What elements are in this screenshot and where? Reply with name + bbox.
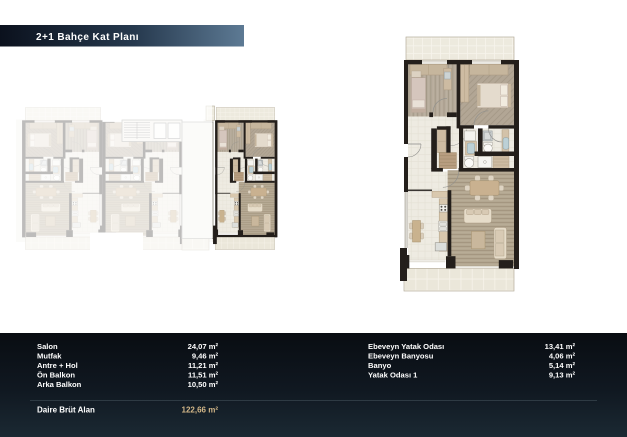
svg-text:4,06 m²: 4,06 m²	[549, 352, 576, 361]
svg-text:9,13 m²: 9,13 m²	[549, 371, 576, 380]
svg-text:11,21 m²: 11,21 m²	[188, 361, 218, 370]
svg-text:Banyo: Banyo	[368, 361, 392, 370]
svg-text:Ön Balkon: Ön Balkon	[37, 371, 75, 380]
svg-text:5,14 m²: 5,14 m²	[549, 361, 576, 370]
svg-text:2+1 Bahçe Kat Planı: 2+1 Bahçe Kat Planı	[36, 32, 139, 43]
svg-text:122,66 m²: 122,66 m²	[182, 406, 219, 415]
svg-text:Ebeveyn Banyosu: Ebeveyn Banyosu	[368, 352, 434, 361]
svg-text:Arka Balkon: Arka Balkon	[37, 380, 82, 389]
svg-text:Yatak Odası 1: Yatak Odası 1	[368, 371, 418, 380]
svg-text:Antre + Hol: Antre + Hol	[37, 361, 78, 370]
svg-text:24,07 m²: 24,07 m²	[188, 342, 219, 351]
svg-text:10,50 m²: 10,50 m²	[188, 380, 219, 389]
svg-text:9,46 m²: 9,46 m²	[192, 352, 219, 361]
svg-text:11,51 m²: 11,51 m²	[188, 371, 218, 380]
svg-text:Ebeveyn Yatak Odası: Ebeveyn Yatak Odası	[368, 342, 444, 351]
svg-text:13,41 m²: 13,41 m²	[545, 342, 576, 351]
svg-text:Daire Brüt Alan: Daire Brüt Alan	[37, 406, 95, 415]
svg-text:Salon: Salon	[37, 342, 58, 351]
svg-text:Mutfak: Mutfak	[37, 352, 62, 361]
